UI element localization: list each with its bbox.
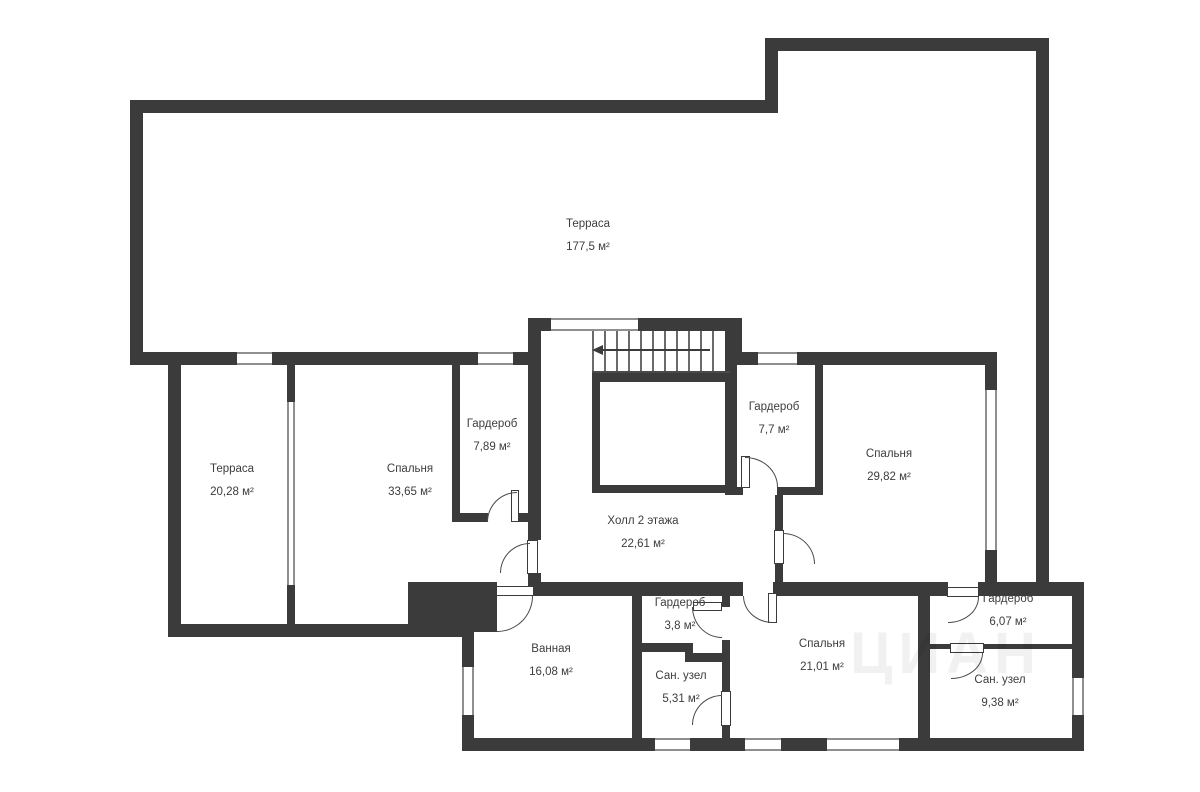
room-name: Сан. узел	[655, 671, 706, 683]
door-arc	[743, 596, 773, 623]
room-name: Гардероб	[655, 598, 706, 610]
room-name: Спальня	[799, 639, 845, 651]
room-name: Гардероб	[467, 419, 518, 431]
room-name: Терраса	[210, 464, 254, 476]
door-arc	[497, 596, 533, 632]
stair-direction-arrow	[600, 349, 710, 351]
room-area: 21,01 м²	[799, 662, 845, 674]
wall	[690, 738, 745, 751]
wall	[722, 640, 730, 692]
wall	[1036, 38, 1049, 595]
room-area: 7,89 м²	[467, 442, 518, 454]
room-name: Спальня	[387, 464, 433, 476]
wall	[781, 738, 827, 751]
wall	[272, 352, 478, 365]
window	[745, 738, 781, 751]
wall	[985, 352, 997, 390]
room-name: Ванная	[529, 644, 573, 656]
room-label: Терраса 20,28 м²	[210, 464, 254, 498]
room-label: Гардероб 3,8 м²	[655, 598, 706, 632]
door-leaf	[496, 586, 534, 596]
room-area: 177,5 м²	[566, 242, 610, 254]
wall	[168, 365, 181, 637]
door-leaf	[721, 691, 731, 726]
stairwell-void-border	[592, 373, 600, 493]
wall	[765, 38, 1049, 51]
wall	[777, 487, 823, 495]
room-label: Терраса 177,5 м²	[566, 219, 610, 253]
wall	[452, 365, 460, 515]
door-arc	[487, 492, 517, 522]
door-arc	[783, 533, 815, 564]
room-label: Гардероб 7,7 м²	[749, 402, 800, 436]
room-area: 29,82 м²	[866, 472, 912, 484]
room-label: Гардероб 6,07 м²	[983, 594, 1034, 628]
room-label: Сан. узел 5,31 м²	[655, 671, 706, 705]
door-opening	[758, 352, 797, 365]
window	[462, 667, 474, 715]
window	[827, 738, 899, 751]
stairwell-void-border	[592, 373, 730, 382]
room-name: Гардероб	[983, 594, 1034, 606]
room-name: Спальня	[866, 449, 912, 461]
room-area: 9,38 м²	[974, 698, 1025, 710]
wall	[533, 582, 743, 596]
room-label: Спальня 33,65 м²	[387, 464, 433, 498]
door-opening	[237, 352, 272, 365]
room-label: Сан. узел 9,38 м²	[974, 675, 1025, 709]
wall	[725, 331, 737, 495]
wall	[797, 352, 997, 365]
room-area: 6,07 м²	[983, 617, 1034, 629]
room-area: 16,08 м²	[529, 667, 573, 679]
wall	[130, 352, 237, 365]
room-area: 20,28 м²	[210, 487, 254, 499]
door-arc	[500, 543, 530, 573]
room-label: Холл 2 этажа 22,61 м²	[607, 516, 678, 550]
wall	[408, 582, 497, 596]
room-label: Гардероб 7,89 м²	[467, 419, 518, 453]
wall	[1072, 582, 1084, 678]
wall	[899, 738, 1084, 751]
room-name: Терраса	[566, 219, 610, 231]
wall	[528, 331, 541, 540]
wall	[815, 352, 823, 495]
wall	[287, 585, 295, 633]
room-name: Гардероб	[749, 402, 800, 414]
door-arc	[745, 457, 778, 487]
wall	[462, 632, 474, 667]
wall	[462, 738, 655, 751]
door-leaf	[947, 587, 979, 597]
wall	[775, 495, 783, 531]
room-name: Сан. узел	[974, 675, 1025, 687]
room-name: Холл 2 этажа	[607, 516, 678, 528]
floor-plan: ЦИАН Терраса 177,5 м² Терраса 20,28 м² С…	[0, 0, 1200, 792]
wall	[130, 100, 143, 365]
window	[1072, 678, 1084, 715]
window	[655, 738, 690, 751]
room-area: 7,7 м²	[749, 425, 800, 437]
room-area: 3,8 м²	[655, 621, 706, 633]
wall	[632, 596, 642, 750]
room-area: 5,31 м²	[655, 694, 706, 706]
room-label: Ванная 16,08 м²	[529, 644, 573, 678]
wall	[130, 100, 778, 113]
window	[985, 390, 997, 550]
room-label: Спальня 21,01 м²	[799, 639, 845, 673]
wall	[685, 643, 693, 662]
wall	[722, 596, 730, 607]
wall	[638, 318, 742, 331]
wall	[452, 513, 488, 522]
room-label: Спальня 29,82 м²	[866, 449, 912, 483]
door-opening	[478, 352, 513, 365]
door-opening	[551, 318, 638, 331]
stair-direction-arrow	[592, 345, 603, 355]
room-area: 22,61 м²	[607, 539, 678, 551]
room-area: 33,65 м²	[387, 487, 433, 499]
stairwell-void-border	[592, 485, 730, 493]
window	[287, 402, 295, 585]
wall	[287, 360, 295, 402]
